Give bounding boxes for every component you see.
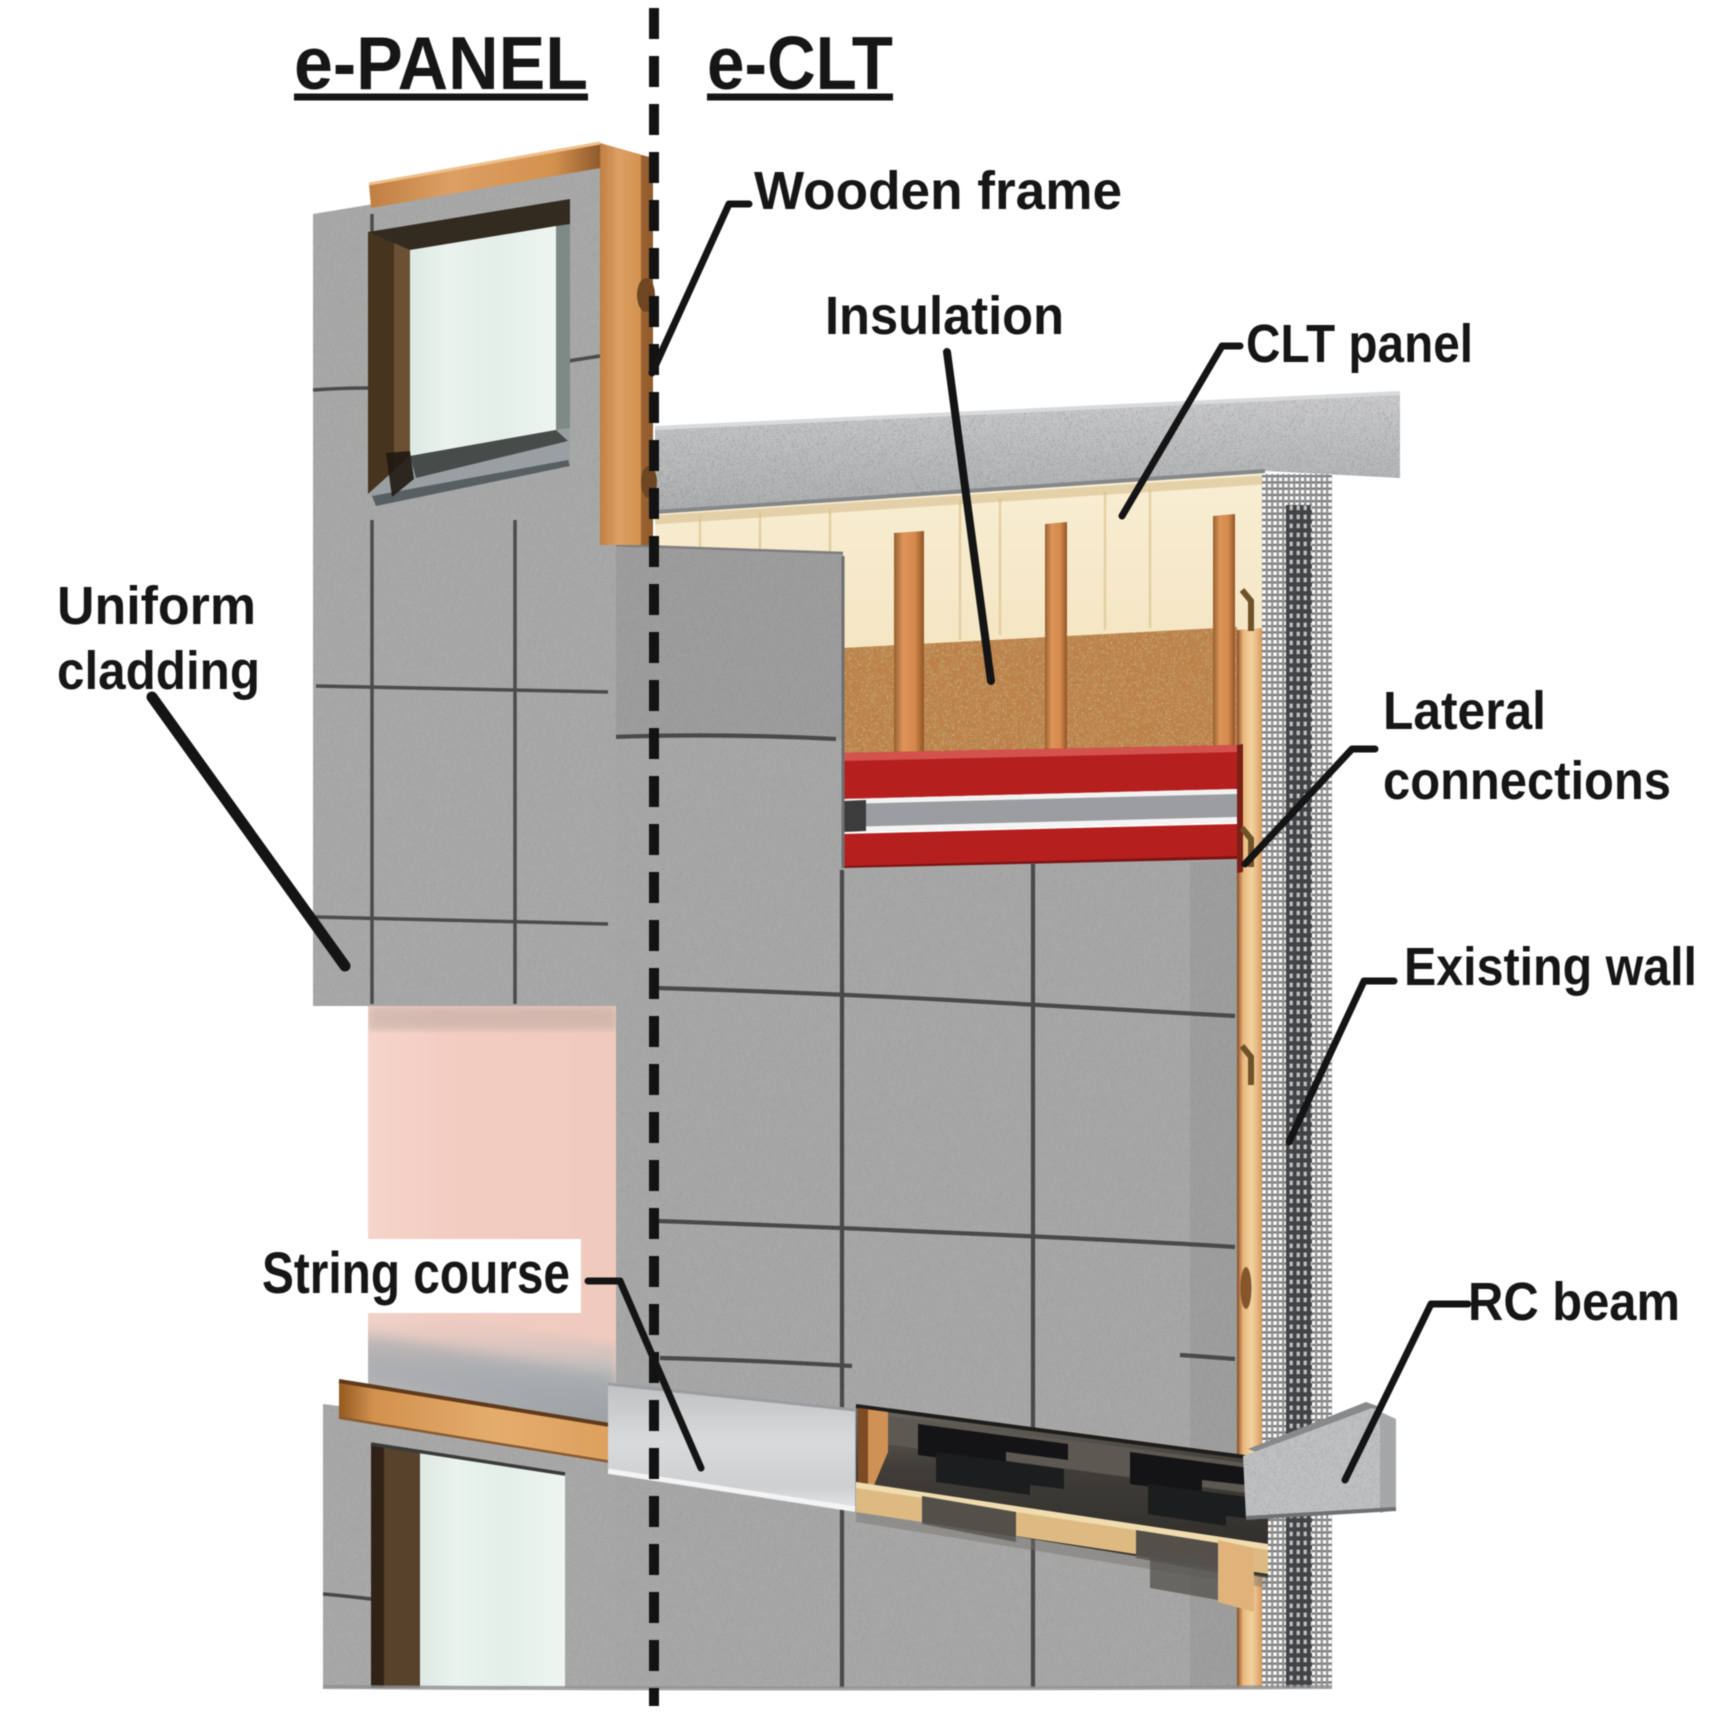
svg-text:CLT panel: CLT panel — [1246, 314, 1473, 374]
svg-text:e-PANEL: e-PANEL — [294, 21, 588, 105]
svg-text:Insulation: Insulation — [825, 286, 1064, 346]
svg-text:String course: String course — [262, 1241, 570, 1306]
svg-text:Wooden frame: Wooden frame — [754, 161, 1122, 221]
svg-text:Uniform: Uniform — [57, 576, 256, 636]
svg-text:Existing wall: Existing wall — [1404, 937, 1697, 997]
svg-text:RC beam: RC beam — [1468, 1272, 1680, 1332]
svg-text:Lateral: Lateral — [1383, 681, 1546, 741]
svg-text:cladding: cladding — [57, 641, 260, 701]
svg-text:e-CLT: e-CLT — [707, 21, 893, 105]
svg-text:connections: connections — [1383, 751, 1671, 811]
